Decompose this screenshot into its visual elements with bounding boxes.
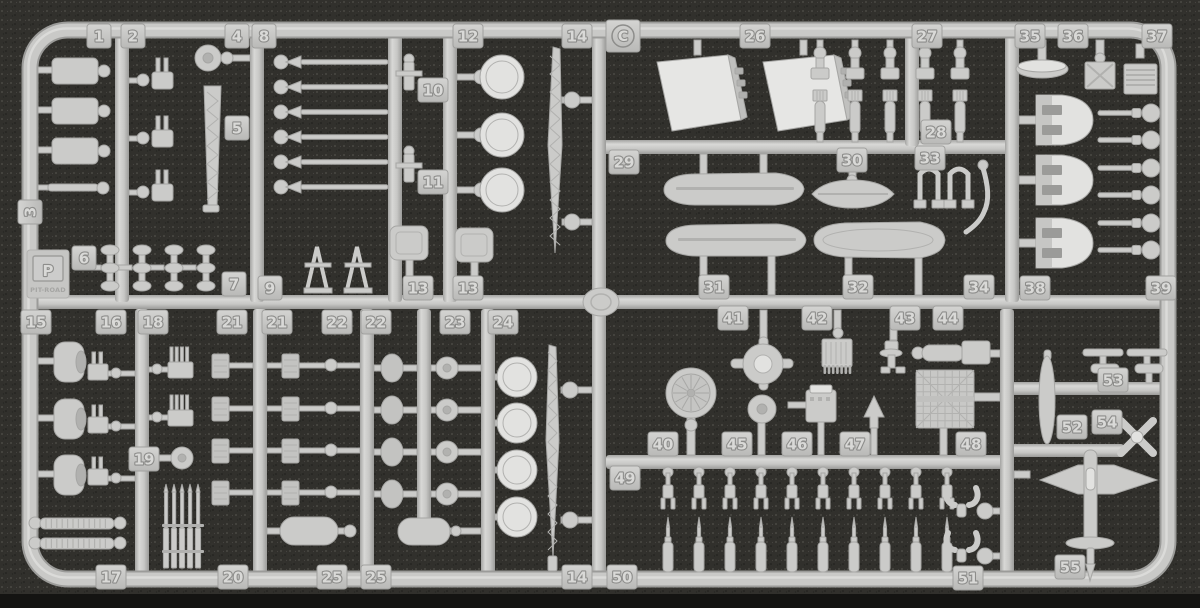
part-tag-1: 1 (87, 24, 111, 48)
svg-text:42: 42 (807, 310, 828, 328)
svg-text:15: 15 (26, 314, 47, 332)
svg-text:36: 36 (1063, 28, 1084, 46)
svg-text:7: 7 (229, 276, 239, 294)
svg-text:52: 52 (1062, 419, 1083, 437)
part-tag-53: 53 (1098, 368, 1128, 392)
part-tag-3: 3 (18, 200, 42, 224)
part-tag-37: 37 (1142, 24, 1172, 48)
part-tag-4: 4 (225, 24, 249, 48)
part-tag-16: 16 (96, 310, 126, 334)
sprue-illustration: 1248121426273536373567910111313293033283… (0, 0, 1200, 608)
svg-text:33: 33 (920, 150, 941, 168)
part-tag-41: 41 (718, 306, 748, 330)
svg-text:25: 25 (366, 569, 387, 587)
svg-text:34: 34 (969, 279, 990, 297)
part-tag-8: 8 (252, 24, 276, 48)
part-tag-35: 35 (1015, 24, 1045, 48)
svg-text:22: 22 (327, 314, 348, 332)
svg-text:21: 21 (267, 314, 288, 332)
part-tag-31: 31 (699, 275, 729, 299)
svg-text:14: 14 (567, 569, 588, 587)
part-tag-21: 21 (262, 310, 292, 334)
part-tag-10: 10 (418, 78, 448, 102)
svg-text:49: 49 (615, 470, 636, 488)
part-tag-25: 25 (361, 565, 391, 589)
svg-text:13: 13 (408, 280, 429, 298)
part-tag-48: 48 (956, 432, 986, 456)
radar-discs-12 (457, 55, 524, 212)
svg-text:3: 3 (22, 207, 40, 217)
part-tag-46: 46 (782, 432, 812, 456)
part-tag-21: 21 (217, 310, 247, 334)
part-tag-6: 6 (72, 246, 96, 270)
part-tag-12: 12 (453, 24, 483, 48)
part-tag-23: 23 (440, 310, 470, 334)
part-tag-2: 2 (121, 24, 145, 48)
part-tag-24: 24 (488, 310, 518, 334)
svg-text:35: 35 (1020, 28, 1041, 46)
part-tag-33: 33 (915, 146, 945, 170)
part-tag-20: 20 (218, 565, 248, 589)
svg-text:25: 25 (322, 569, 343, 587)
svg-text:51: 51 (958, 570, 979, 588)
part-tag-28: 28 (921, 120, 951, 144)
svg-text:26: 26 (745, 28, 766, 46)
part-tag-42: 42 (802, 306, 832, 330)
svg-text:48: 48 (961, 436, 982, 454)
part-tag-45: 45 (722, 432, 752, 456)
svg-text:30: 30 (842, 152, 863, 170)
part-tag-49: 49 (610, 466, 640, 490)
part-tag-11: 11 (418, 170, 448, 194)
part-tag-50: 50 (607, 565, 637, 589)
svg-text:14: 14 (567, 28, 588, 46)
svg-text:C: C (618, 29, 628, 45)
part-tag-5: 5 (225, 116, 249, 140)
part-tag-39: 39 (1146, 276, 1176, 300)
svg-text:24: 24 (493, 314, 514, 332)
svg-text:P: P (43, 262, 54, 280)
svg-text:5: 5 (232, 120, 242, 138)
svg-text:12: 12 (458, 28, 479, 46)
part-tag-52: 52 (1057, 415, 1087, 439)
part-tag-14: 14 (562, 565, 592, 589)
part-tag-40: 40 (648, 432, 678, 456)
svg-text:18: 18 (143, 314, 164, 332)
svg-text:16: 16 (101, 314, 122, 332)
brand-logo: PPIT-ROAD (27, 250, 69, 298)
part-tag-15: 15 (21, 310, 51, 334)
part-tag-47: 47 (840, 432, 870, 456)
svg-text:32: 32 (848, 279, 869, 297)
part-tag-44: 44 (933, 306, 963, 330)
gate-letter: C (606, 20, 640, 52)
svg-text:23: 23 (445, 314, 466, 332)
sprue-photo: 1248121426273536373567910111313293033283… (0, 0, 1200, 608)
part-tag-32: 32 (843, 275, 873, 299)
part-tag-38: 38 (1020, 276, 1050, 300)
part-tag-43: 43 (890, 306, 920, 330)
svg-text:22: 22 (366, 314, 387, 332)
svg-text:17: 17 (101, 569, 122, 587)
svg-text:11: 11 (423, 174, 444, 192)
part-tag-13: 13 (453, 276, 483, 300)
part-tag-26: 26 (740, 24, 770, 48)
svg-text:28: 28 (926, 124, 947, 142)
svg-text:10: 10 (423, 82, 444, 100)
svg-text:50: 50 (612, 569, 633, 587)
svg-text:54: 54 (1097, 414, 1118, 432)
svg-text:37: 37 (1147, 28, 1168, 46)
part-tag-34: 34 (964, 275, 994, 299)
part-tag-19: 19 (129, 447, 159, 471)
svg-text:53: 53 (1103, 372, 1124, 390)
part-tag-18: 18 (138, 310, 168, 334)
svg-text:9: 9 (265, 280, 275, 298)
svg-text:PIT-ROAD: PIT-ROAD (30, 286, 66, 294)
svg-text:29: 29 (614, 154, 635, 172)
part-tag-54: 54 (1092, 410, 1122, 434)
part-tag-17: 17 (96, 565, 126, 589)
svg-text:55: 55 (1060, 559, 1081, 577)
svg-text:46: 46 (787, 436, 808, 454)
svg-text:45: 45 (727, 436, 748, 454)
part-tag-27: 27 (912, 24, 942, 48)
svg-text:6: 6 (79, 250, 89, 268)
svg-text:44: 44 (938, 310, 959, 328)
svg-text:19: 19 (134, 451, 155, 469)
part-tag-36: 36 (1058, 24, 1088, 48)
part-tag-22: 22 (322, 310, 352, 334)
part-tag-29: 29 (609, 150, 639, 174)
svg-text:13: 13 (458, 280, 479, 298)
part-tag-22: 22 (361, 310, 391, 334)
svg-text:39: 39 (1151, 280, 1172, 298)
svg-text:40: 40 (653, 436, 674, 454)
part-tag-30: 30 (837, 148, 867, 172)
center-gate-boss (583, 288, 619, 316)
part-tag-14: 14 (562, 24, 592, 48)
svg-text:1: 1 (94, 28, 104, 46)
svg-text:21: 21 (222, 314, 243, 332)
part-tag-7: 7 (222, 272, 246, 296)
svg-text:31: 31 (704, 279, 725, 297)
svg-text:4: 4 (232, 28, 242, 46)
part-tag-55: 55 (1055, 555, 1085, 579)
turret-shields-38 (1019, 95, 1093, 268)
svg-text:20: 20 (223, 569, 244, 587)
svg-text:8: 8 (259, 28, 269, 46)
part-tag-51: 51 (953, 566, 983, 590)
svg-text:27: 27 (917, 28, 938, 46)
part-tag-9: 9 (258, 276, 282, 300)
svg-text:41: 41 (723, 310, 744, 328)
svg-text:43: 43 (895, 310, 916, 328)
svg-text:38: 38 (1025, 280, 1046, 298)
part-tag-13: 13 (403, 276, 433, 300)
svg-text:2: 2 (128, 28, 138, 46)
svg-text:47: 47 (845, 436, 866, 454)
part-tag-25: 25 (317, 565, 347, 589)
